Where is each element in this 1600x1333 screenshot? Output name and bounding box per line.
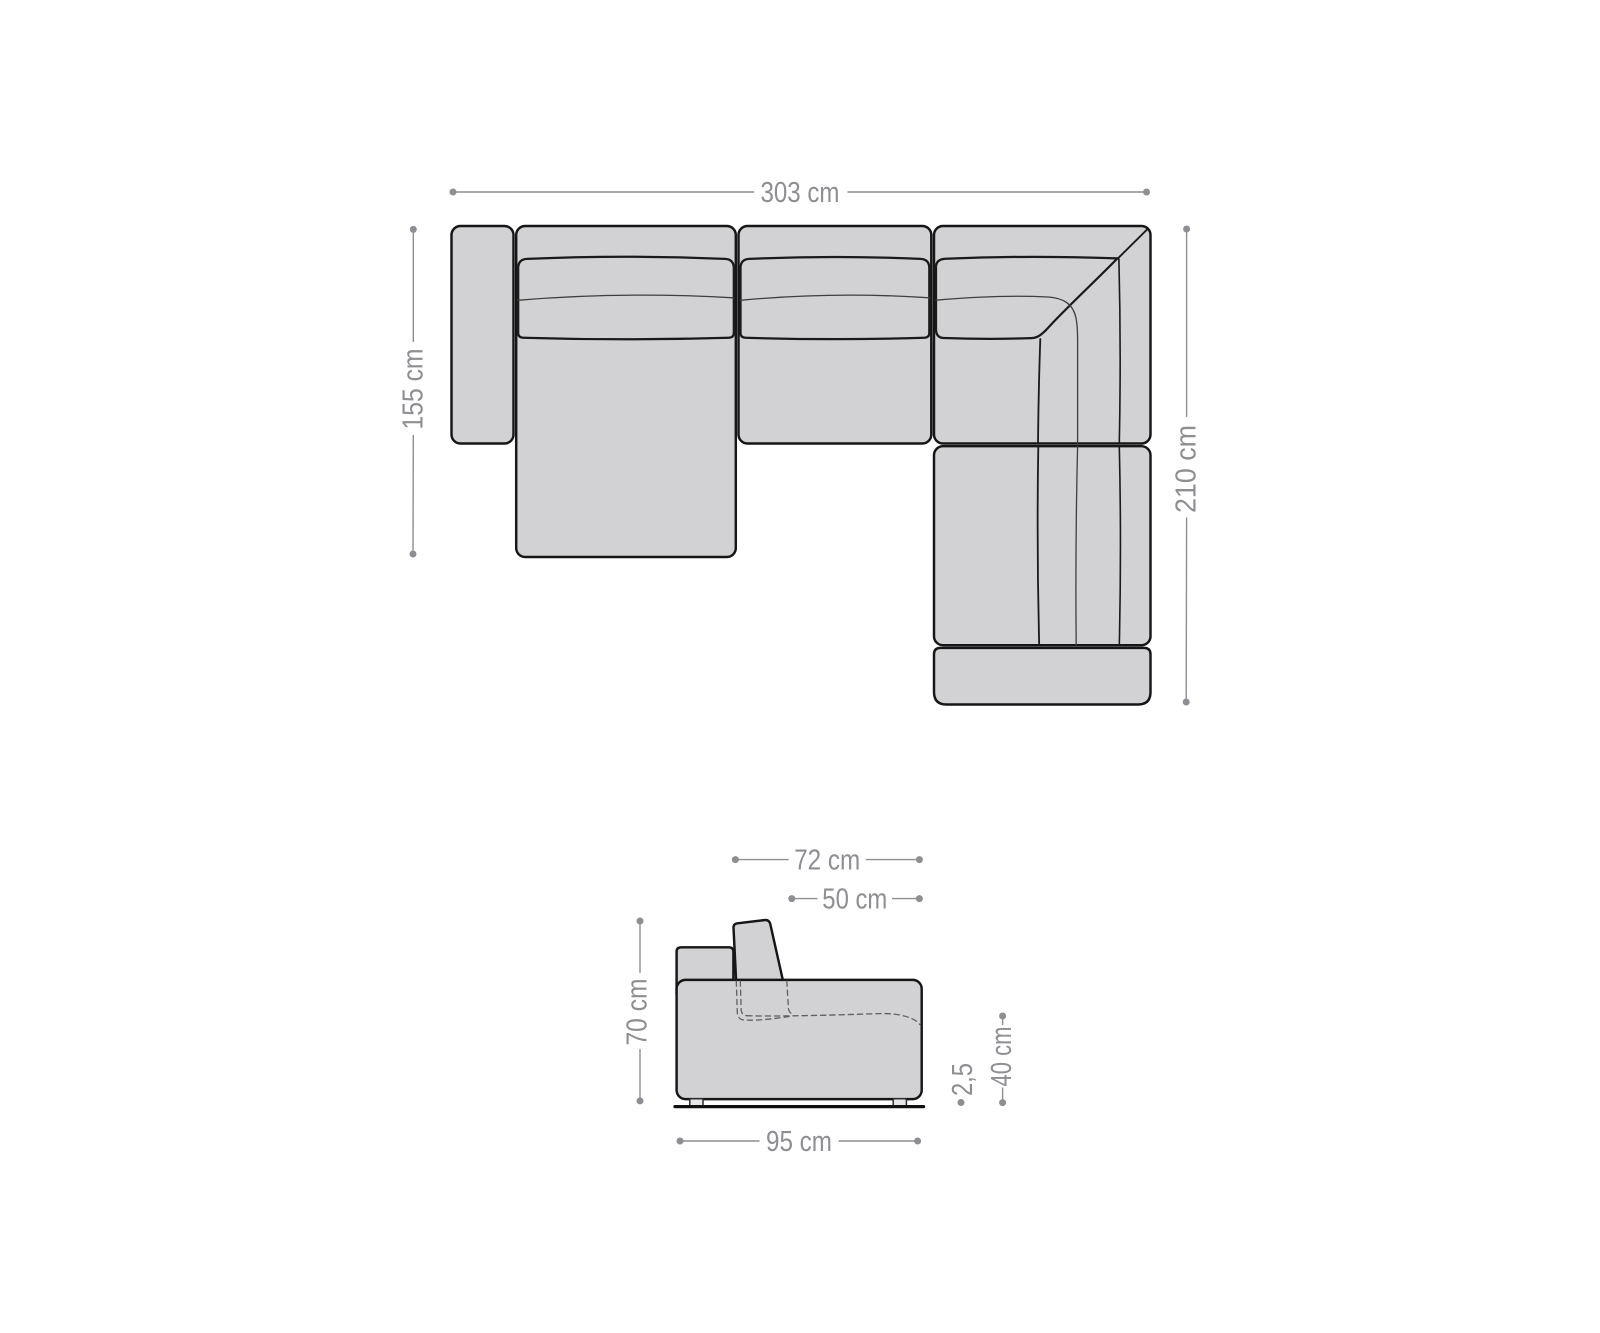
- svg-text:303 cm: 303 cm: [761, 177, 840, 209]
- svg-text:70 cm: 70 cm: [622, 979, 654, 1046]
- svg-text:2,5: 2,5: [947, 1063, 979, 1096]
- svg-text:210 cm: 210 cm: [1170, 425, 1202, 513]
- svg-text:72 cm: 72 cm: [794, 845, 860, 877]
- svg-text:95 cm: 95 cm: [766, 1126, 832, 1158]
- svg-text:155 cm: 155 cm: [397, 349, 429, 430]
- svg-text:40 cm: 40 cm: [986, 1027, 1018, 1087]
- svg-text:50 cm: 50 cm: [822, 884, 887, 916]
